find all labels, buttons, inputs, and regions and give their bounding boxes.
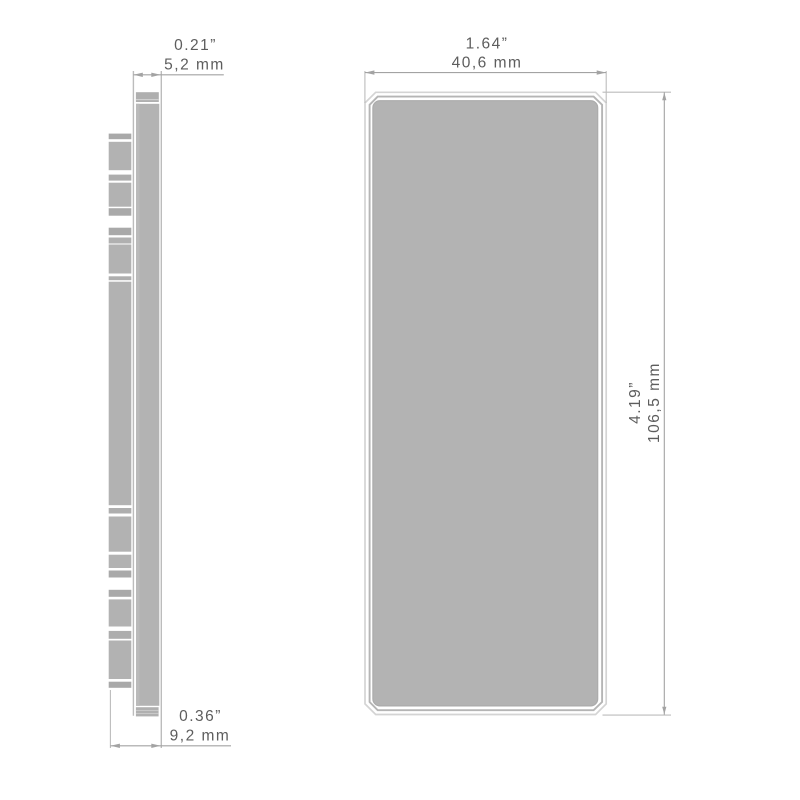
svg-text:40,6 mm: 40,6 mm (452, 55, 523, 72)
svg-text:0.36”: 0.36” (179, 708, 222, 725)
svg-text:1.64”: 1.64” (466, 35, 509, 52)
svg-text:106,5 mm: 106,5 mm (646, 362, 663, 443)
svg-text:4.19”: 4.19” (627, 381, 644, 424)
svg-text:9,2 mm: 9,2 mm (170, 727, 231, 744)
svg-text:5,2 mm: 5,2 mm (164, 56, 225, 73)
svg-text:0.21”: 0.21” (174, 37, 217, 54)
